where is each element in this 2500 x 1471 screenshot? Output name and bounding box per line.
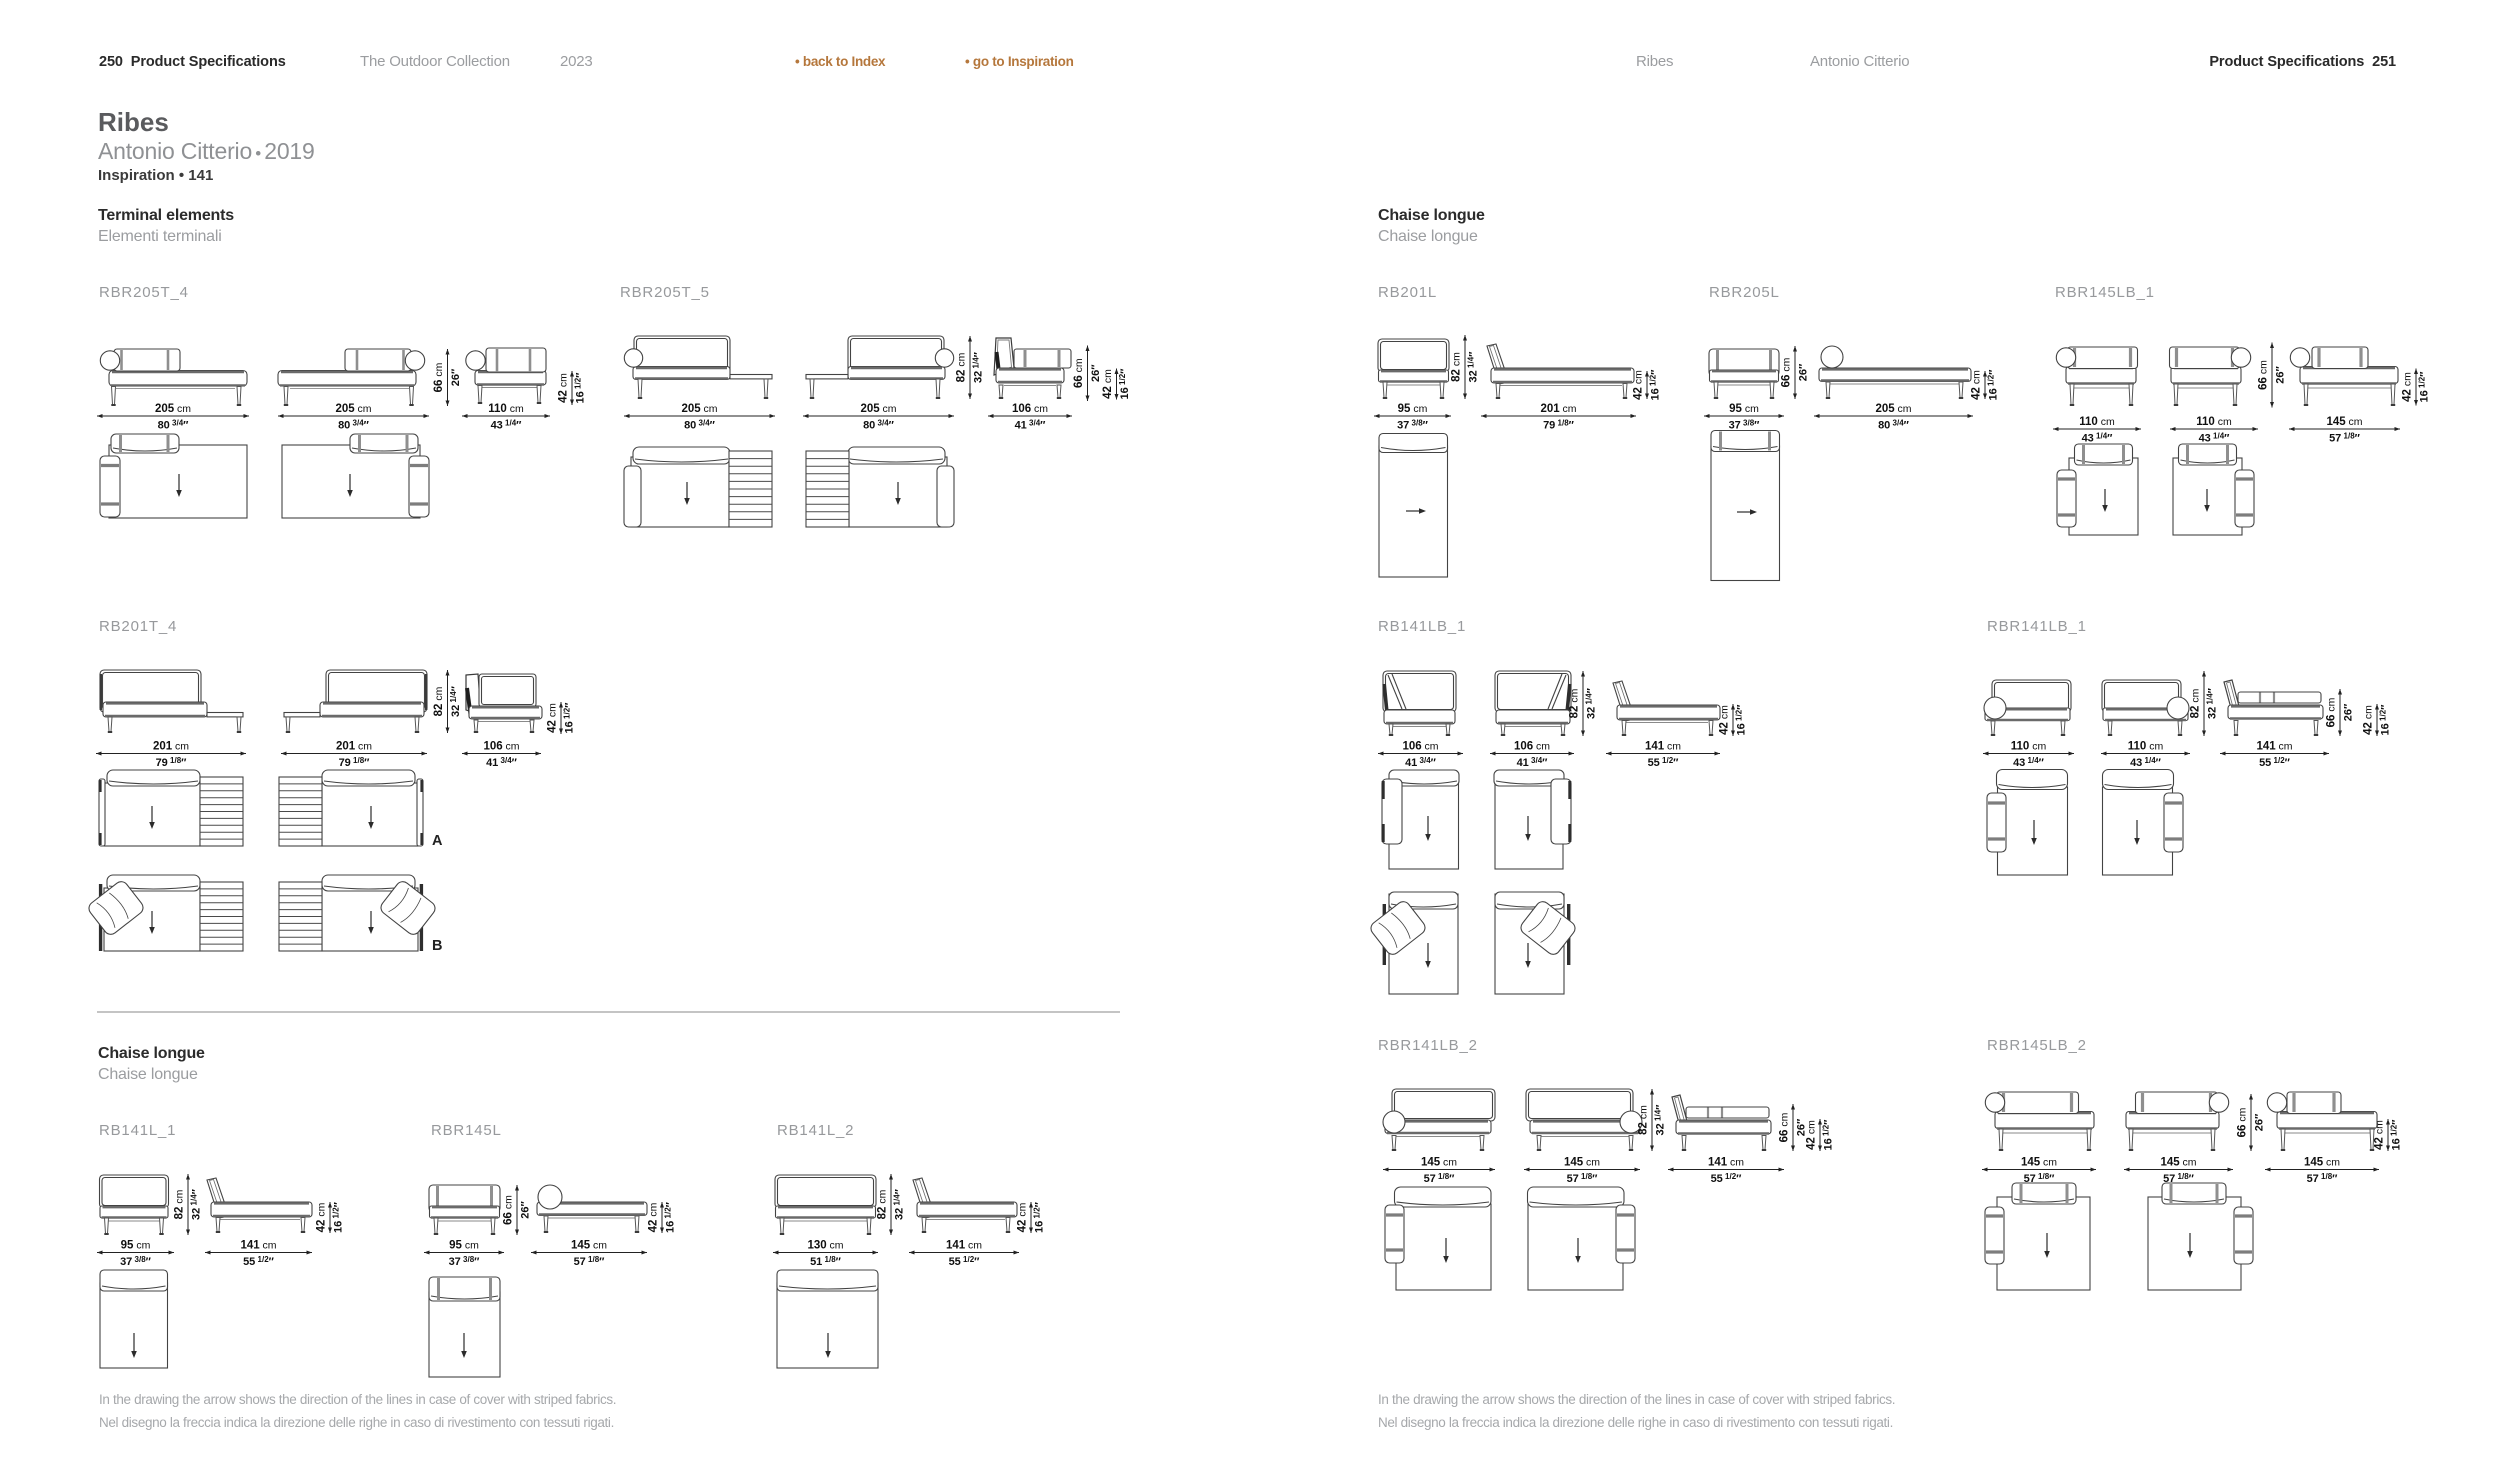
svg-text:16 1/2″: 16 1/2″ — [574, 372, 587, 404]
svg-text:80 3/4″: 80 3/4″ — [1878, 419, 1910, 432]
svg-text:141 cm: 141 cm — [946, 1240, 982, 1252]
svg-text:57 1/8″: 57 1/8″ — [2307, 1172, 2339, 1185]
svg-text:42 cm: 42 cm — [547, 703, 559, 733]
svg-text:141 cm: 141 cm — [1708, 1157, 1744, 1169]
svg-text:55 1/2″: 55 1/2″ — [1711, 1172, 1743, 1185]
svg-text:RB141L_2: RB141L_2 — [777, 1122, 854, 1139]
svg-text:16 1/2″: 16 1/2″ — [1118, 368, 1131, 400]
svg-text:16 1/2″: 16 1/2″ — [1987, 369, 2000, 401]
svg-text:RBR141LB_2: RBR141LB_2 — [1378, 1037, 1478, 1054]
svg-text:43 1/4″: 43 1/4″ — [491, 419, 523, 432]
svg-text:57 1/8″: 57 1/8″ — [1567, 1172, 1599, 1185]
svg-text:26″: 26″ — [1798, 363, 1810, 381]
svg-text:The Outdoor Collection: The Outdoor Collection — [360, 53, 510, 70]
svg-text:• go to Inspiration: • go to Inspiration — [965, 54, 1074, 69]
svg-text:Chaise longue: Chaise longue — [98, 1066, 198, 1083]
svg-text:16 1/2″: 16 1/2″ — [1649, 369, 1662, 401]
svg-text:32 1/4″: 32 1/4″ — [893, 1188, 906, 1220]
svg-text:42 cm: 42 cm — [648, 1202, 660, 1232]
svg-text:42 cm: 42 cm — [1102, 369, 1114, 399]
svg-text:82 cm: 82 cm — [174, 1189, 186, 1219]
svg-text:Ribes: Ribes — [1636, 53, 1673, 70]
svg-text:66 cm: 66 cm — [503, 1195, 515, 1225]
svg-text:26″: 26″ — [520, 1201, 532, 1219]
svg-text:16 1/2″: 16 1/2″ — [1033, 1201, 1046, 1233]
svg-text:110 cm: 110 cm — [488, 403, 524, 415]
svg-text:66 cm: 66 cm — [433, 362, 445, 392]
svg-text:Terminal elements: Terminal elements — [98, 207, 234, 224]
svg-text:80 3/4″: 80 3/4″ — [863, 419, 895, 432]
svg-text:79 1/8″: 79 1/8″ — [156, 756, 188, 769]
svg-text:42 cm: 42 cm — [1017, 1202, 1029, 1232]
svg-text:16 1/2″: 16 1/2″ — [2390, 1119, 2403, 1151]
svg-text:106 cm: 106 cm — [1402, 741, 1438, 753]
svg-text:42 cm: 42 cm — [2374, 1120, 2386, 1150]
svg-text:110 cm: 110 cm — [2128, 741, 2164, 753]
svg-text:110 cm: 110 cm — [2079, 416, 2115, 428]
svg-text:16 1/2″: 16 1/2″ — [664, 1201, 677, 1233]
svg-text:145 cm: 145 cm — [1421, 1157, 1457, 1169]
svg-text:26″: 26″ — [2343, 703, 2355, 721]
svg-text:95 cm: 95 cm — [449, 1240, 479, 1252]
svg-text:RBR145L: RBR145L — [431, 1122, 502, 1139]
svg-text:42 cm: 42 cm — [316, 1202, 328, 1232]
svg-text:82 cm: 82 cm — [2190, 688, 2202, 718]
svg-text:80 3/4″: 80 3/4″ — [158, 419, 190, 432]
svg-text:26″: 26″ — [2275, 366, 2287, 384]
svg-text:66 cm: 66 cm — [1779, 1112, 1791, 1142]
svg-text:57 1/8″: 57 1/8″ — [1424, 1172, 1456, 1185]
svg-text:57 1/8″: 57 1/8″ — [574, 1255, 606, 1268]
svg-text:32 1/4″: 32 1/4″ — [190, 1188, 203, 1220]
svg-text:26″: 26″ — [2254, 1113, 2266, 1131]
svg-text:RB201L: RB201L — [1378, 284, 1437, 301]
svg-text:145 cm: 145 cm — [2326, 416, 2362, 428]
svg-text:37 3/8″: 37 3/8″ — [449, 1255, 481, 1268]
svg-text:55 1/2″: 55 1/2″ — [2259, 756, 2291, 769]
svg-text:43 1/4″: 43 1/4″ — [2199, 432, 2231, 445]
svg-text:80 3/4″: 80 3/4″ — [338, 419, 370, 432]
svg-text:Product Specifications 251: Product Specifications 251 — [2209, 54, 2396, 70]
svg-text:201 cm: 201 cm — [336, 741, 372, 753]
svg-text:145 cm: 145 cm — [571, 1240, 607, 1252]
svg-text:37 3/8″: 37 3/8″ — [1729, 419, 1761, 432]
svg-text:Ribes: Ribes — [98, 107, 169, 137]
svg-text:RBR205T_5: RBR205T_5 — [620, 284, 710, 301]
svg-text:110 cm: 110 cm — [2011, 741, 2047, 753]
svg-text:201 cm: 201 cm — [153, 741, 189, 753]
svg-text:RBR205L: RBR205L — [1709, 284, 1780, 301]
svg-text:205 cm: 205 cm — [681, 403, 717, 415]
svg-text:55 1/2″: 55 1/2″ — [243, 1255, 275, 1268]
svg-text:80 3/4″: 80 3/4″ — [684, 419, 716, 432]
svg-text:43 1/4″: 43 1/4″ — [2013, 756, 2045, 769]
svg-text:42 cm: 42 cm — [2363, 705, 2375, 735]
svg-text:42 cm: 42 cm — [1719, 705, 1731, 735]
svg-text:51 1/8″: 51 1/8″ — [810, 1255, 842, 1268]
svg-text:Chaise longue: Chaise longue — [1378, 207, 1485, 224]
svg-text:55 1/2″: 55 1/2″ — [949, 1255, 981, 1268]
svg-text:RB141LB_1: RB141LB_1 — [1378, 618, 1466, 635]
svg-text:32 1/4″: 32 1/4″ — [1467, 351, 1480, 383]
svg-text:66 cm: 66 cm — [1781, 357, 1793, 387]
svg-text:Chaise longue: Chaise longue — [1378, 228, 1478, 245]
svg-text:82 cm: 82 cm — [1569, 688, 1581, 718]
svg-text:82 cm: 82 cm — [433, 686, 445, 716]
svg-text:55 1/2″: 55 1/2″ — [1648, 756, 1680, 769]
svg-text:In the drawing the arrow shows: In the drawing the arrow shows the direc… — [99, 1392, 616, 1407]
svg-text:RB201T_4: RB201T_4 — [99, 618, 177, 635]
svg-text:66 cm: 66 cm — [2326, 697, 2338, 727]
svg-text:106 cm: 106 cm — [1514, 741, 1550, 753]
svg-text:82 cm: 82 cm — [956, 352, 968, 382]
svg-text:141 cm: 141 cm — [240, 1240, 276, 1252]
svg-text:42 cm: 42 cm — [1971, 370, 1983, 400]
svg-text:42 cm: 42 cm — [2402, 372, 2414, 402]
svg-text:82 cm: 82 cm — [877, 1189, 889, 1219]
svg-text:16 1/2″: 16 1/2″ — [1822, 1119, 1835, 1151]
svg-text:43 1/4″: 43 1/4″ — [2130, 756, 2162, 769]
svg-text:2023: 2023 — [560, 53, 593, 70]
svg-text:16 1/2″: 16 1/2″ — [2418, 371, 2431, 403]
svg-text:205 cm: 205 cm — [155, 403, 191, 415]
svg-text:141 cm: 141 cm — [1645, 741, 1681, 753]
svg-text:26″: 26″ — [1090, 364, 1102, 382]
svg-text:Inspiration • 141: Inspiration • 141 — [98, 167, 213, 184]
svg-text:141 cm: 141 cm — [2256, 741, 2292, 753]
svg-text:106 cm: 106 cm — [483, 741, 519, 753]
svg-text:Chaise longue: Chaise longue — [98, 1045, 205, 1062]
svg-text:145 cm: 145 cm — [2304, 1157, 2340, 1169]
svg-text:82 cm: 82 cm — [1451, 352, 1463, 382]
svg-text:37 3/8″: 37 3/8″ — [1397, 419, 1429, 432]
svg-text:32 1/4″: 32 1/4″ — [449, 685, 462, 717]
svg-text:RBR145LB_2: RBR145LB_2 — [1987, 1037, 2087, 1054]
svg-text:79 1/8″: 79 1/8″ — [339, 756, 371, 769]
svg-text:32 1/4″: 32 1/4″ — [2206, 687, 2219, 719]
svg-text:41 3/4″: 41 3/4″ — [1517, 756, 1549, 769]
svg-text:Elementi terminali: Elementi terminali — [98, 228, 222, 245]
svg-text:32 1/4″: 32 1/4″ — [972, 351, 985, 383]
svg-text:16 1/2″: 16 1/2″ — [332, 1201, 345, 1233]
svg-text:66 cm: 66 cm — [2258, 360, 2270, 390]
svg-text:B: B — [432, 938, 442, 954]
svg-text:16 1/2″: 16 1/2″ — [2379, 704, 2392, 736]
svg-text:RBR145LB_1: RBR145LB_1 — [2055, 284, 2155, 301]
svg-text:32 1/4″: 32 1/4″ — [1654, 1104, 1667, 1136]
svg-text:95 cm: 95 cm — [1729, 403, 1759, 415]
svg-text:205 cm: 205 cm — [860, 403, 896, 415]
svg-text:145 cm: 145 cm — [1564, 1157, 1600, 1169]
svg-text:RBR205T_4: RBR205T_4 — [99, 284, 189, 301]
svg-text:37 3/8″: 37 3/8″ — [120, 1255, 152, 1268]
svg-text:201 cm: 201 cm — [1540, 403, 1576, 415]
svg-text:Antonio Citterio: Antonio Citterio — [1810, 53, 1909, 70]
svg-text:42 cm: 42 cm — [558, 373, 570, 403]
svg-text:42 cm: 42 cm — [1633, 370, 1645, 400]
svg-text:106 cm: 106 cm — [1012, 403, 1048, 415]
svg-text:250 Product Specifications: 250 Product Specifications — [99, 54, 286, 70]
svg-text:130 cm: 130 cm — [807, 1240, 843, 1252]
svg-text:66 cm: 66 cm — [1073, 358, 1085, 388]
svg-text:43 1/4″: 43 1/4″ — [2082, 432, 2114, 445]
svg-text:41 3/4″: 41 3/4″ — [486, 756, 518, 769]
svg-text:• back to Index: • back to Index — [795, 54, 886, 69]
svg-text:16 1/2″: 16 1/2″ — [563, 702, 576, 734]
svg-text:79 1/8″: 79 1/8″ — [1543, 419, 1575, 432]
svg-text:145 cm: 145 cm — [2021, 1157, 2057, 1169]
svg-text:RBR141LB_1: RBR141LB_1 — [1987, 618, 2087, 635]
svg-text:66 cm: 66 cm — [2237, 1107, 2249, 1137]
svg-text:41 3/4″: 41 3/4″ — [1015, 419, 1047, 432]
svg-text:42 cm: 42 cm — [1806, 1120, 1818, 1150]
svg-text:In the drawing the arrow shows: In the drawing the arrow shows the direc… — [1378, 1392, 1895, 1407]
svg-text:32 1/4″: 32 1/4″ — [1585, 687, 1598, 719]
svg-text:A: A — [432, 833, 443, 849]
svg-text:145 cm: 145 cm — [2160, 1157, 2196, 1169]
svg-text:26″: 26″ — [450, 368, 462, 386]
svg-text:RB141L_1: RB141L_1 — [99, 1122, 176, 1139]
svg-text:82 cm: 82 cm — [1638, 1105, 1650, 1135]
svg-text:41 3/4″: 41 3/4″ — [1405, 756, 1437, 769]
svg-text:95 cm: 95 cm — [121, 1240, 151, 1252]
svg-text:Nel disegno la freccia indica: Nel disegno la freccia indica la direzio… — [1378, 1415, 1893, 1430]
svg-text:Antonio Citterio • 2019: Antonio Citterio • 2019 — [98, 138, 315, 164]
svg-text:110 cm: 110 cm — [2196, 416, 2232, 428]
svg-text:205 cm: 205 cm — [1875, 403, 1911, 415]
svg-text:16 1/2″: 16 1/2″ — [1735, 704, 1748, 736]
svg-text:57 1/8″: 57 1/8″ — [2329, 432, 2361, 445]
svg-text:205 cm: 205 cm — [335, 403, 371, 415]
svg-text:Nel disegno la freccia indica: Nel disegno la freccia indica la direzio… — [99, 1415, 614, 1430]
svg-text:95 cm: 95 cm — [1398, 403, 1428, 415]
